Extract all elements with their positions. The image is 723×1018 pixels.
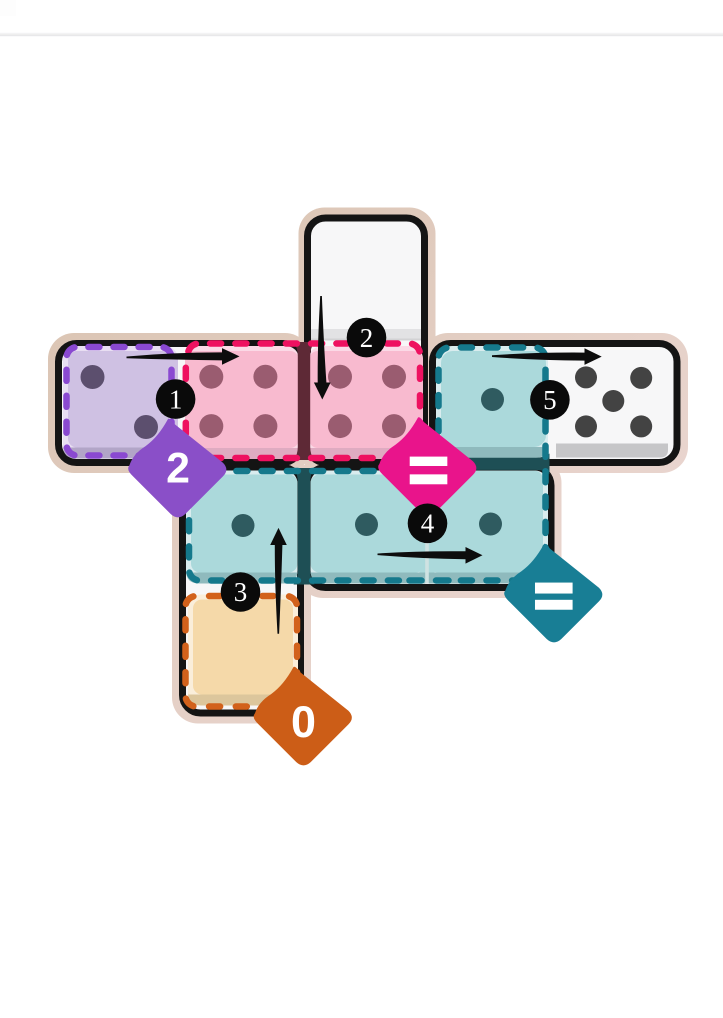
- svg-text:4: 4: [421, 509, 435, 539]
- svg-text:5: 5: [543, 385, 557, 415]
- svg-text:3: 3: [234, 577, 248, 607]
- svg-text:1: 1: [169, 384, 183, 414]
- svg-text:2: 2: [166, 445, 190, 493]
- svg-text:0: 0: [291, 696, 316, 747]
- svg-text:2: 2: [360, 323, 374, 353]
